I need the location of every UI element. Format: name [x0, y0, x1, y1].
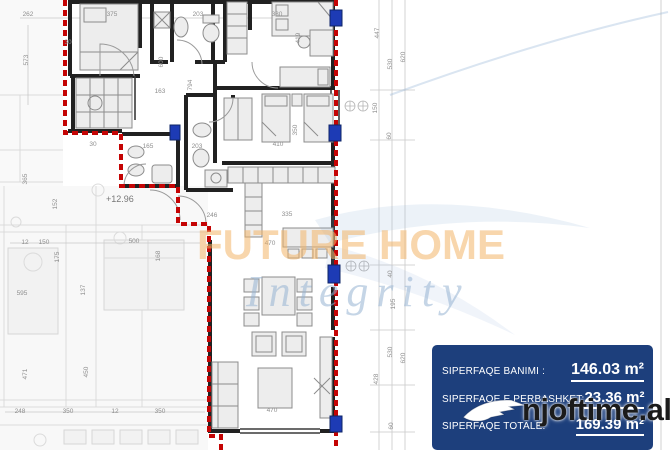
dimension-label: 262: [23, 11, 34, 18]
dimension-label: 335: [282, 211, 293, 218]
dimension-label: 380: [272, 11, 283, 18]
dimension-label: 60: [388, 422, 395, 430]
dimension-label: 450: [83, 366, 90, 377]
dimension-label: 150: [39, 239, 50, 246]
dimension-label: 573: [23, 54, 30, 65]
level-label: +12.96: [106, 194, 134, 204]
dimension-label: 165: [143, 143, 154, 150]
area-row-banimi: SIPERFAQE BANIMI : 146.03 m²: [442, 361, 644, 382]
dimension-label: 419: [295, 32, 302, 43]
dimension-label: 350: [155, 408, 166, 415]
dimension-label: 12: [21, 239, 29, 246]
dimension-label: 150: [372, 102, 379, 113]
dimension-label: 30: [64, 39, 72, 46]
dimension-label: 350: [63, 408, 74, 415]
watermark-brand: FUTURE HOME: [197, 221, 505, 269]
dimension-label: 163: [155, 88, 166, 95]
dimension-label: 203: [193, 11, 204, 18]
dimension-label: 12: [111, 408, 119, 415]
bird-logo-icon: [462, 396, 528, 432]
dimension-label: 794: [187, 79, 194, 90]
dimension-label: 246: [207, 212, 218, 219]
dimension-label: 447: [374, 27, 381, 38]
dimension-label: 248: [15, 408, 26, 415]
dimension-label: 152: [52, 198, 59, 209]
dimension-label: 600: [158, 56, 165, 67]
dimension-label: 530: [387, 58, 394, 69]
dimension-label: 30: [89, 141, 97, 148]
dimension-label: 620: [400, 51, 407, 62]
dimension-label: 137: [80, 284, 87, 295]
dimension-label: 60: [386, 132, 393, 140]
dimension-label: 350: [292, 124, 299, 135]
dimension-label: 471: [22, 368, 29, 379]
watermark-tagline: Integrity: [246, 266, 470, 317]
dimension-label: 365: [22, 173, 29, 184]
dimension-label: 595: [17, 290, 28, 297]
floor-plan-page: 2623752033803057360079416341944753062035…: [0, 0, 670, 450]
dimension-label: 428: [373, 373, 380, 384]
area-label: SIPERFAQE BANIMI :: [442, 366, 545, 377]
dimension-label: 620: [400, 352, 407, 363]
dimension-label: 175: [54, 251, 61, 262]
dimension-label: 203: [192, 143, 203, 150]
site-logo: njoftime.al: [462, 390, 670, 436]
site-logo-text: njoftime.al: [522, 392, 670, 428]
dimension-label: 168: [155, 250, 162, 261]
dimension-label: 500: [129, 238, 140, 245]
dimension-label: 470: [267, 407, 278, 414]
dimension-label: 410: [273, 141, 284, 148]
dimension-label: 530: [387, 346, 394, 357]
area-value: 146.03 m²: [571, 361, 644, 382]
dimension-label: 375: [107, 11, 118, 18]
